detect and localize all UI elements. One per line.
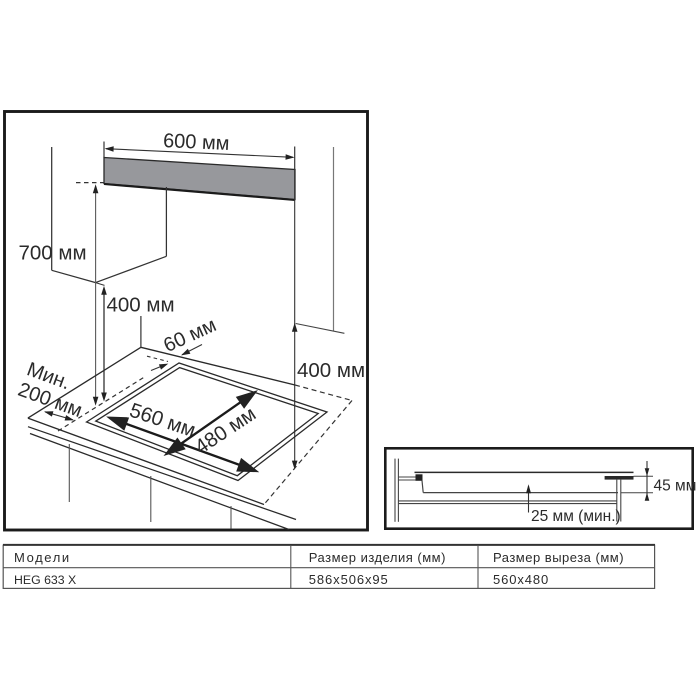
svg-text:Размер выреза (мм): Размер выреза (мм)	[493, 550, 624, 565]
svg-text:45 мм: 45 мм	[654, 478, 697, 495]
svg-text:560 мм: 560 мм	[127, 399, 199, 442]
svg-text:400 мм: 400 мм	[297, 359, 365, 382]
svg-text:Модели: Модели	[14, 550, 71, 565]
svg-text:560x480: 560x480	[493, 572, 549, 587]
svg-text:400 мм: 400 мм	[106, 294, 174, 317]
svg-text:586x506x95: 586x506x95	[309, 572, 389, 587]
svg-text:HEG 633 X: HEG 633 X	[14, 573, 76, 587]
svg-text:700 мм: 700 мм	[18, 241, 86, 264]
svg-text:25 мм (мин.): 25 мм (мин.)	[531, 508, 621, 525]
svg-text:600 мм: 600 мм	[163, 130, 230, 155]
svg-text:Размер изделия (мм): Размер изделия (мм)	[309, 550, 446, 565]
